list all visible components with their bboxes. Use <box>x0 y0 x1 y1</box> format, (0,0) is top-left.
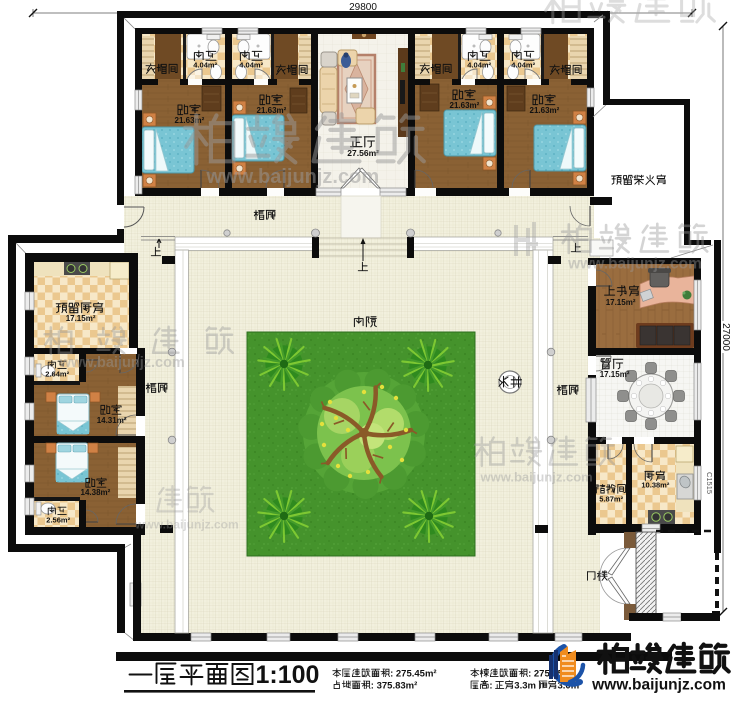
svg-text:: 375.83m²: : 375.83m² <box>371 680 417 691</box>
svg-text:3.3m: 3.3m <box>514 680 536 691</box>
svg-text:www.baijunjz.com: www.baijunjz.com <box>591 677 726 694</box>
svg-text::: : <box>489 680 492 691</box>
svg-text:27000: 27000 <box>720 323 731 351</box>
svg-text:1:100: 1:100 <box>256 661 320 689</box>
svg-text:21.63m²: 21.63m² <box>257 106 287 115</box>
svg-text:17.15m²: 17.15m² <box>606 298 636 307</box>
svg-text:4.04m²: 4.04m² <box>193 61 217 70</box>
svg-text:www.baijunjz.com: www.baijunjz.com <box>206 166 380 188</box>
svg-text:2.56m²: 2.56m² <box>46 516 70 525</box>
svg-text:4.04m²: 4.04m² <box>467 61 491 70</box>
svg-text:21.63m²: 21.63m² <box>175 116 205 125</box>
svg-text:17.15m²: 17.15m² <box>66 314 96 323</box>
svg-text:www.baijunjz.com: www.baijunjz.com <box>480 470 593 485</box>
svg-text:www.baijunjz.com: www.baijunjz.com <box>134 517 239 531</box>
svg-text:www.baijunjz.com: www.baijunjz.com <box>59 355 185 371</box>
svg-text:10.38m²: 10.38m² <box>641 481 669 490</box>
svg-text:21.63m²: 21.63m² <box>530 106 560 115</box>
svg-text:5.87m²: 5.87m² <box>599 495 623 504</box>
svg-text:www.baijunjz.com: www.baijunjz.com <box>567 256 702 273</box>
svg-text:C1515: C1515 <box>705 472 714 494</box>
svg-text:: 275.45m²: : 275.45m² <box>390 668 436 679</box>
svg-text:14.31m²: 14.31m² <box>97 416 127 425</box>
svg-text:4.04m²: 4.04m² <box>239 61 263 70</box>
svg-text:4.04m²: 4.04m² <box>511 61 535 70</box>
svg-text:21.63m²: 21.63m² <box>450 101 480 110</box>
svg-text:17.15m²: 17.15m² <box>600 370 630 379</box>
svg-text:14.38m²: 14.38m² <box>81 488 111 497</box>
